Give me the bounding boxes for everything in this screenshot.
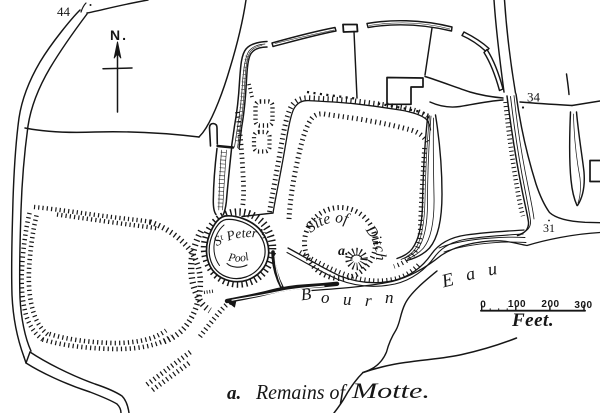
svg-text:Remains of: Remains of	[255, 380, 348, 404]
svg-text:34: 34	[527, 90, 541, 105]
svg-text:a.: a.	[338, 244, 349, 259]
svg-text:Feet.: Feet.	[511, 310, 554, 331]
svg-text:u: u	[343, 290, 352, 309]
svg-text:N.: N.	[110, 27, 128, 43]
svg-text:300: 300	[574, 300, 592, 311]
svg-text:Motte.: Motte.	[351, 378, 430, 403]
svg-text:100: 100	[508, 299, 526, 310]
svg-text:a.: a.	[227, 383, 241, 404]
svg-text:0: 0	[480, 300, 486, 311]
svg-text:200: 200	[541, 299, 559, 310]
svg-text:44: 44	[57, 4, 71, 19]
svg-text:n: n	[385, 288, 394, 307]
svg-text:31: 31	[543, 221, 555, 235]
svg-text:o: o	[321, 288, 330, 307]
